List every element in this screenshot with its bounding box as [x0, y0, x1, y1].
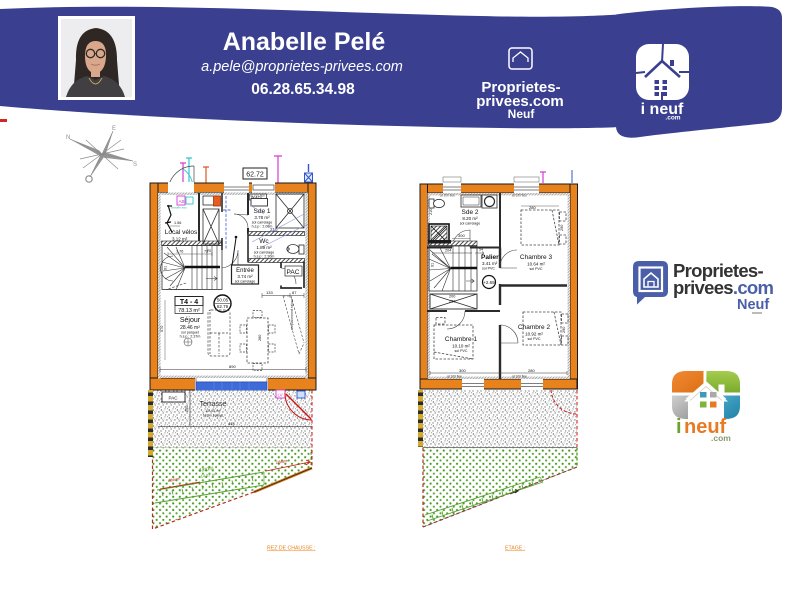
svg-text:sol carrelage: sol carrelage: [235, 280, 256, 284]
svg-text:Neuf: Neuf: [508, 107, 536, 121]
svg-text:sol PVC: sol PVC: [530, 267, 543, 271]
svg-text:at 100 flee: at 100 flee: [512, 375, 527, 379]
svg-text:3.41 m²: 3.41 m²: [482, 261, 498, 266]
svg-text:3.78 m²: 3.78 m²: [254, 215, 270, 220]
svg-text:a.pele@proprietes-privees.com: a.pele@proprietes-privees.com: [201, 59, 403, 75]
svg-text:280: 280: [258, 335, 262, 341]
svg-text:LV: LV: [278, 393, 283, 398]
svg-text:280: 280: [529, 205, 536, 210]
svg-text:78.13 m²: 78.13 m²: [178, 308, 200, 314]
svg-text:at 100 flee: at 100 flee: [440, 194, 455, 198]
svg-text:Chambre 2: Chambre 2: [518, 324, 551, 331]
svg-text:87: 87: [292, 290, 297, 295]
svg-text:at 100 flee: at 100 flee: [250, 194, 265, 198]
svg-text:1.76: 1.76: [176, 250, 183, 254]
svg-text:at 100 flee: at 100 flee: [512, 194, 527, 198]
svg-text:Neuf: Neuf: [737, 297, 769, 313]
svg-text:1.89 m²: 1.89 m²: [256, 245, 272, 250]
svg-text:200: 200: [449, 295, 455, 299]
svg-text:Wc: Wc: [259, 238, 269, 245]
svg-text:at 100 flee: at 100 flee: [447, 375, 462, 379]
svg-text:280: 280: [528, 368, 535, 373]
svg-text:300: 300: [459, 368, 466, 373]
svg-text:S: S: [133, 162, 137, 168]
svg-text:Anabelle Pelé: Anabelle Pelé: [223, 28, 386, 56]
svg-text:béton balayé: béton balayé: [203, 414, 224, 418]
svg-text:444: 444: [228, 421, 235, 426]
svg-text:E: E: [112, 126, 116, 132]
svg-text:62.72: 62.72: [246, 172, 264, 179]
svg-text:50.05: 50.05: [217, 298, 229, 303]
svg-text:1.56: 1.56: [174, 221, 181, 225]
svg-text:290: 290: [562, 327, 566, 333]
svg-text:sol PVC: sol PVC: [528, 337, 541, 341]
svg-text:AB: AB: [179, 199, 185, 204]
svg-text:62.79: 62.79: [217, 304, 229, 309]
svg-text:sol carrelage: sol carrelage: [460, 222, 481, 226]
svg-text:privees.com: privees.com: [673, 277, 774, 298]
svg-text:91: 91: [164, 266, 168, 270]
svg-text:10.64 m²: 10.64 m²: [527, 262, 545, 267]
svg-text:.com: .com: [665, 115, 680, 122]
svg-text:N: N: [66, 135, 70, 141]
svg-text:sol PVC: sol PVC: [482, 267, 495, 271]
svg-text:133: 133: [266, 290, 273, 295]
svg-text:h.s.p : 2.37m: h.s.p : 2.37m: [180, 335, 201, 339]
svg-text:3.12 m²: 3.12 m²: [172, 237, 188, 242]
svg-text:8.20 m²: 8.20 m²: [462, 216, 478, 221]
svg-text:sol PVC: sol PVC: [455, 349, 468, 353]
svg-text:T4 - 4: T4 - 4: [180, 299, 198, 306]
svg-text:10.92 m²: 10.92 m²: [525, 332, 543, 337]
svg-text:Chambre 3: Chambre 3: [520, 254, 553, 261]
svg-text:Séjour: Séjour: [180, 317, 201, 324]
svg-text:3.74 m²: 3.74 m²: [237, 274, 253, 279]
svg-text:Terrasse: Terrasse: [200, 401, 227, 408]
svg-text:ETAGE :: ETAGE :: [505, 546, 525, 552]
svg-text:Local vélos: Local vélos: [165, 229, 198, 236]
svg-text:210: 210: [429, 209, 433, 215]
svg-text:Palier: Palier: [481, 254, 499, 261]
svg-text:REZ DE CHAUSSE :: REZ DE CHAUSSE :: [267, 546, 315, 552]
svg-text:Sde 2: Sde 2: [462, 209, 479, 216]
svg-text:15.40 m²: 15.40 m²: [205, 408, 221, 413]
svg-text:204: 204: [445, 249, 451, 253]
svg-text:91: 91: [431, 263, 435, 267]
svg-text:emplacement séjour: emplacement séjour: [290, 298, 294, 330]
svg-text:i: i: [676, 416, 682, 438]
svg-text:06.28.65.34.98: 06.28.65.34.98: [251, 81, 355, 98]
svg-text:54: 54: [479, 248, 483, 252]
svg-text:230: 230: [449, 300, 455, 304]
svg-text:890: 890: [229, 364, 236, 369]
svg-text:PAC: PAC: [287, 269, 300, 276]
svg-text:Chambre 1: Chambre 1: [445, 336, 478, 343]
svg-text:210: 210: [270, 227, 278, 232]
svg-text:+2.69: +2.69: [483, 280, 495, 285]
svg-text:10.10 m²: 10.10 m²: [452, 344, 470, 349]
svg-text:PAC: PAC: [169, 396, 179, 401]
svg-text:250: 250: [185, 406, 189, 412]
svg-text:h.s.p : 2.30m: h.s.p : 2.30m: [254, 255, 275, 259]
svg-text:290: 290: [560, 225, 564, 231]
svg-text:.com: .com: [711, 433, 731, 443]
svg-text:070: 070: [160, 326, 164, 332]
svg-text:72: 72: [204, 250, 208, 254]
svg-text:chauffe eau: chauffe eau: [171, 206, 187, 210]
